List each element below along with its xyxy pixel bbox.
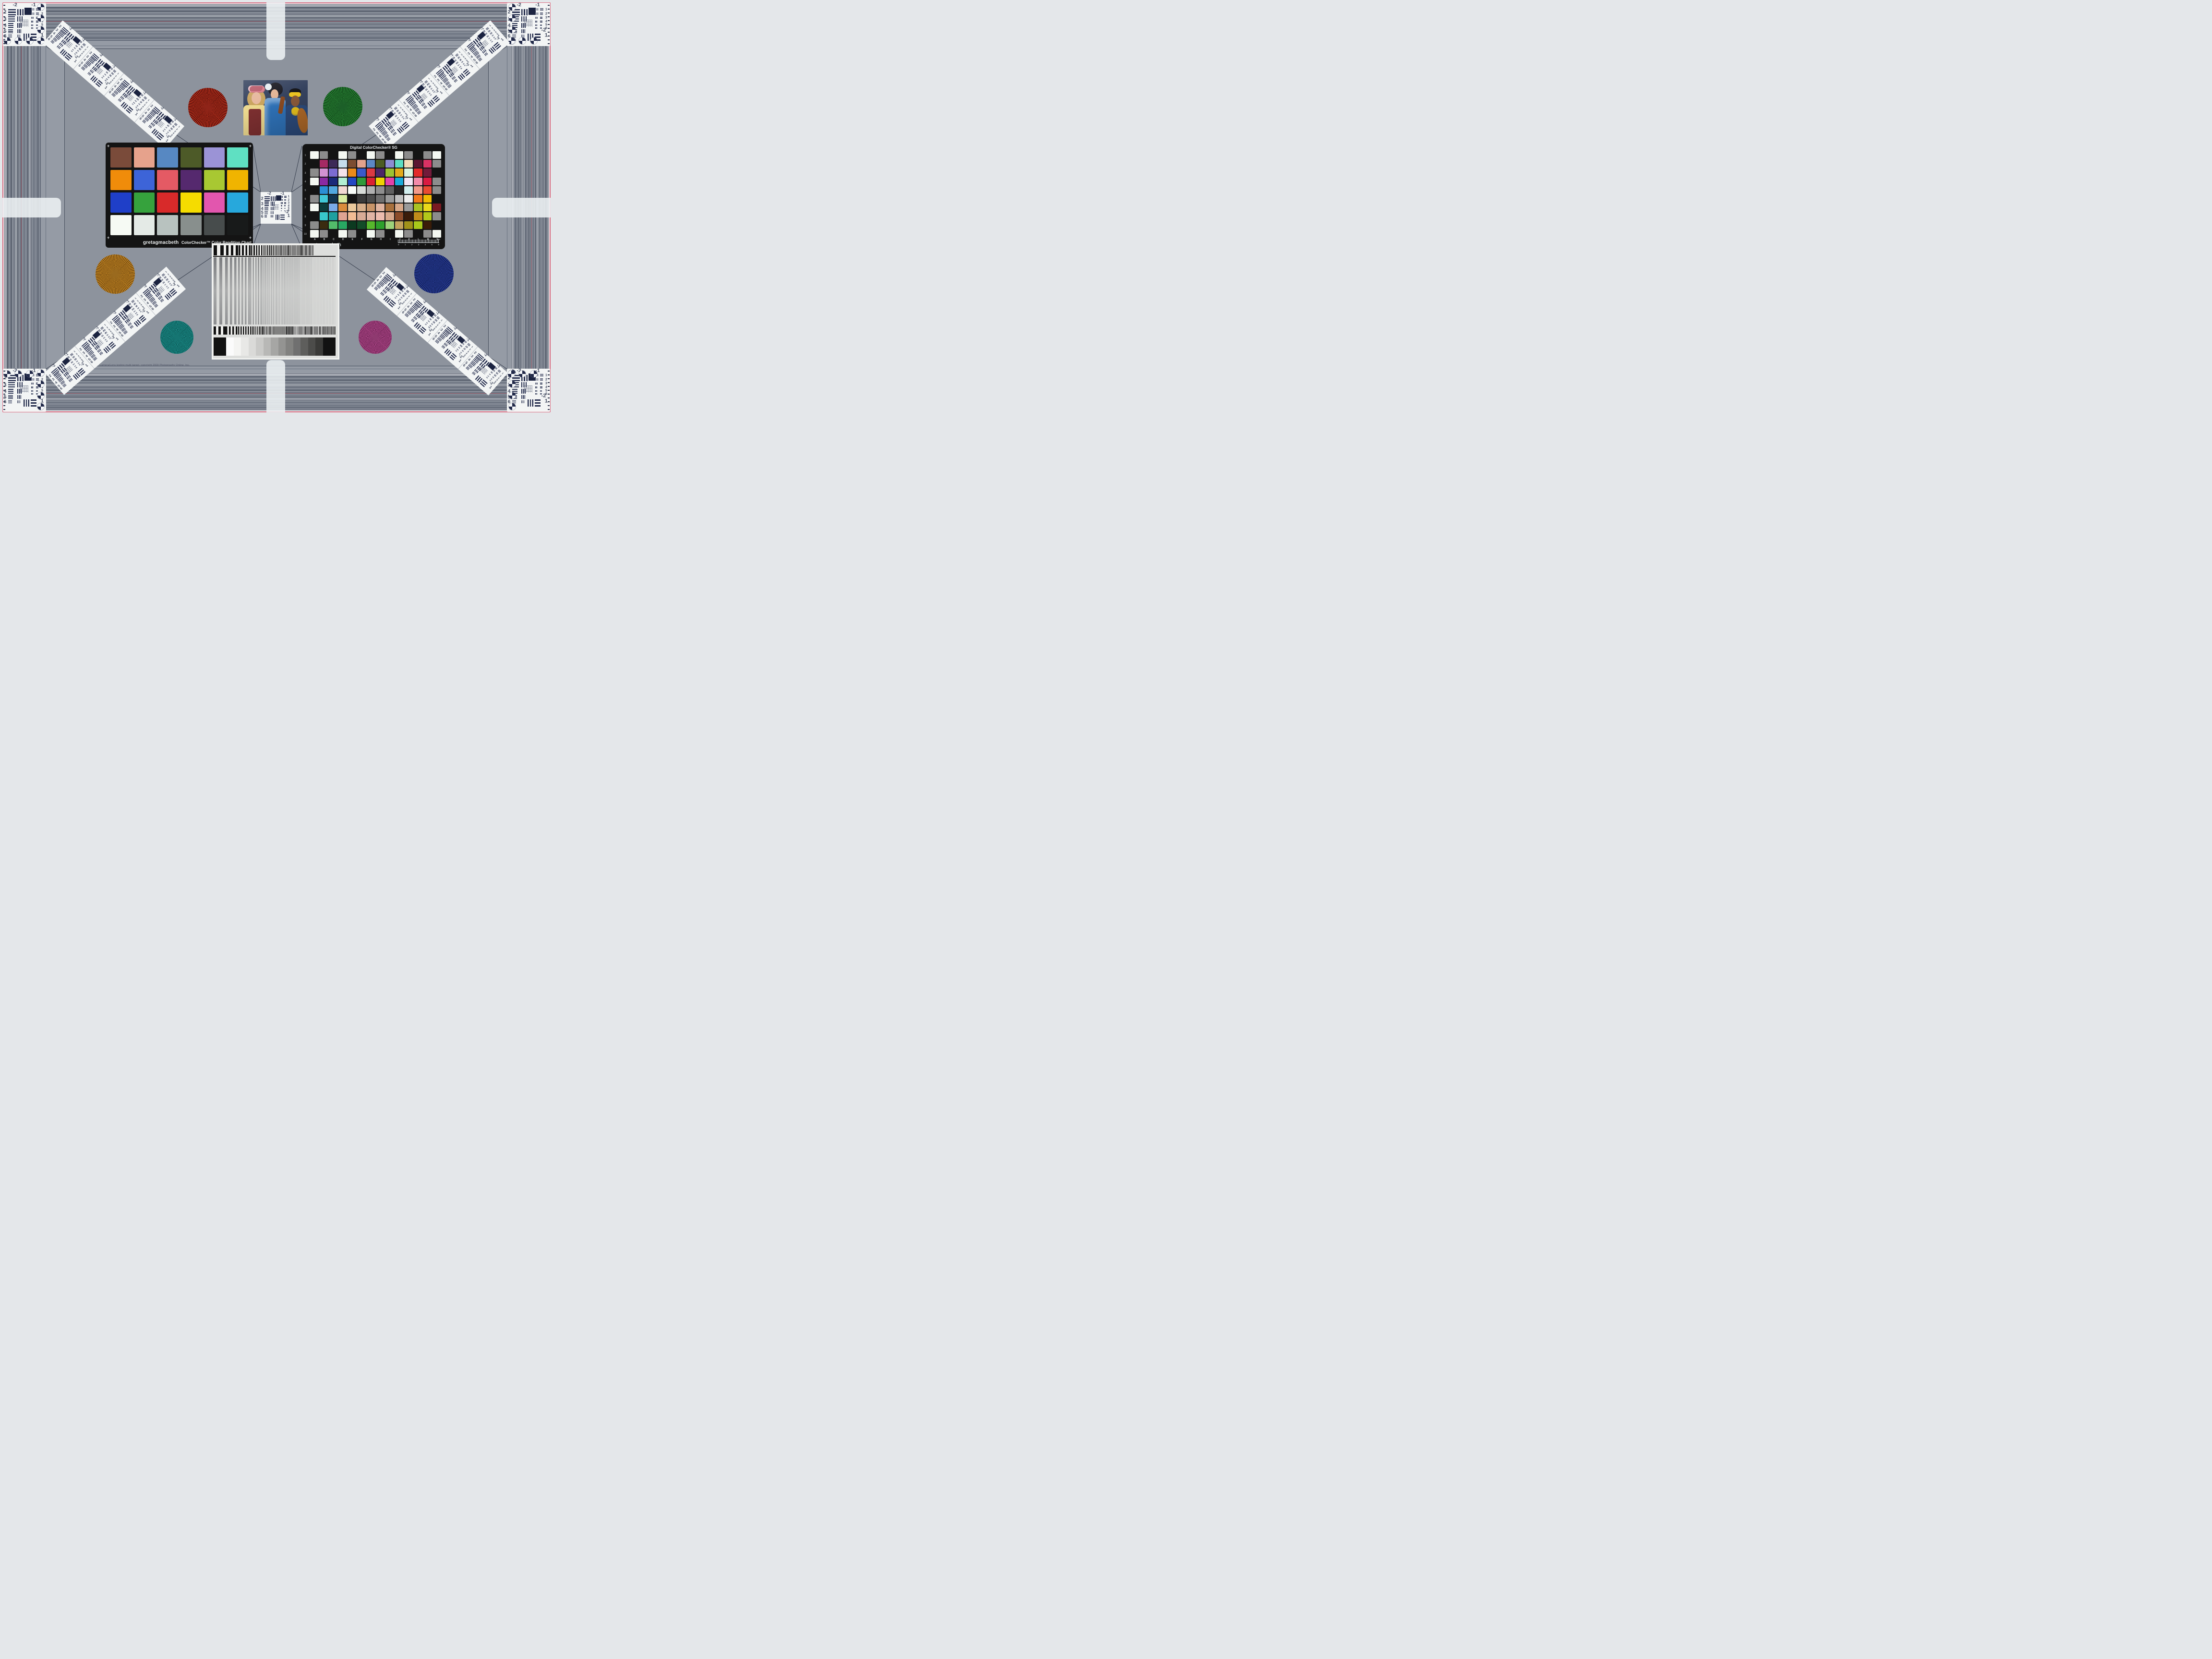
sg-grid	[310, 151, 441, 238]
usaf-bars	[99, 332, 102, 335]
usaf-bars	[79, 48, 81, 50]
usaf-number: 6	[59, 386, 63, 390]
usaf-bars	[521, 400, 525, 404]
color-patch	[395, 160, 404, 168]
usaf-bars	[135, 305, 138, 307]
color-patch	[320, 151, 328, 159]
usaf-number: 2	[443, 325, 446, 328]
registration-mark	[509, 403, 516, 410]
usaf-bars	[452, 57, 455, 60]
color-patch	[320, 186, 328, 194]
usaf-bars	[31, 17, 34, 19]
usaf-bars	[457, 56, 460, 59]
ramp-step	[234, 337, 241, 356]
registration-mark	[37, 15, 44, 22]
usaf-bars	[521, 9, 528, 16]
ramp-step	[256, 337, 264, 356]
usaf-number: 1	[288, 195, 289, 198]
registration-mark	[519, 37, 526, 44]
color-patch	[348, 195, 357, 203]
color-patch	[367, 178, 375, 185]
ramp-step	[264, 337, 271, 356]
color-patch	[367, 212, 375, 220]
usaf-number: 6	[139, 117, 143, 120]
usaf-bars	[399, 299, 401, 301]
color-patch	[134, 170, 155, 190]
usaf-bars	[271, 215, 273, 217]
color-patch	[329, 151, 337, 159]
usaf-bars	[449, 353, 457, 361]
usaf-bars	[17, 9, 24, 16]
usaf-bars	[489, 373, 491, 375]
usaf-bars	[132, 104, 133, 105]
mini-resolution-chart	[448, 339, 457, 348]
usaf-number: 1	[104, 85, 108, 90]
usaf-bars	[429, 85, 431, 88]
usaf-bars	[174, 123, 177, 126]
registration-mark	[509, 4, 516, 11]
usaf-bars	[17, 400, 21, 404]
bar-sweep-bottom	[214, 326, 336, 335]
usaf-bars	[284, 205, 286, 206]
usaf-bars	[395, 297, 396, 299]
black-square	[133, 89, 142, 97]
registration-mark	[509, 381, 516, 387]
usaf-bars	[138, 103, 141, 105]
usaf-number: 3	[545, 382, 547, 385]
usaf-bars	[142, 99, 144, 102]
color-patch	[338, 168, 347, 176]
siemens-star-blue	[414, 254, 454, 293]
usaf-bars	[264, 202, 269, 205]
usaf-bars	[484, 33, 487, 36]
color-patch	[376, 186, 385, 194]
usaf-number: 1	[500, 37, 505, 42]
usaf-bars	[167, 288, 168, 289]
usaf-number: 2	[508, 10, 511, 15]
star-center	[414, 254, 454, 293]
color-patch	[310, 212, 319, 220]
star-center	[359, 321, 392, 354]
usaf-bars	[459, 66, 461, 68]
usaf-number: -2	[267, 191, 271, 195]
star-center	[188, 88, 228, 127]
color-patch	[320, 212, 328, 220]
usaf-bars	[490, 39, 492, 41]
usaf-number: 4	[545, 386, 547, 389]
color-patch	[357, 204, 366, 211]
usaf-bars	[540, 17, 542, 19]
color-patch	[157, 147, 178, 168]
usaf-bars	[467, 343, 470, 347]
color-patch	[320, 160, 328, 168]
usaf-bars	[484, 52, 488, 56]
color-patch	[414, 168, 422, 176]
usaf-bars	[31, 24, 33, 26]
usaf-bars	[67, 356, 70, 359]
usaf-bars	[426, 322, 428, 324]
usaf-number: 1	[427, 332, 432, 337]
usaf-bars	[396, 296, 397, 298]
usaf-bars	[488, 37, 490, 39]
colorchecker-grid	[110, 147, 248, 235]
color-patch	[367, 168, 375, 176]
color-patch	[338, 160, 347, 168]
ruler-ticks	[3, 5, 5, 44]
usaf-bars	[494, 374, 496, 376]
ramp-step	[249, 337, 256, 356]
usaf-number: 2	[88, 51, 92, 55]
usaf-bars	[393, 132, 397, 136]
sweep-segment	[299, 326, 311, 335]
sg-column-label: H	[380, 238, 382, 241]
usaf-bars	[133, 302, 136, 305]
color-patch	[227, 192, 248, 213]
mini-resolution-chart	[94, 66, 103, 75]
usaf-bars	[8, 16, 15, 22]
black-square	[103, 62, 111, 71]
test-chart: -2-123456123456-21 -2-123456123456-21 -2…	[0, 0, 553, 415]
color-patch	[180, 170, 202, 190]
usaf-bars	[140, 101, 142, 103]
color-patch	[433, 204, 441, 211]
siemens-star-magenta	[359, 321, 392, 354]
ruler-ticks	[3, 371, 5, 410]
siemens-star-teal	[160, 321, 193, 354]
usaf-bars	[31, 27, 33, 29]
color-patch	[320, 230, 328, 238]
sweep-segment	[264, 245, 276, 255]
usaf-bars	[427, 83, 430, 86]
sg-column-label: F	[361, 238, 362, 241]
usaf-bars	[164, 128, 166, 130]
color-patch	[320, 204, 328, 211]
usaf-number: 1	[176, 284, 180, 288]
usaf-bars	[164, 284, 166, 286]
usaf-bars	[99, 352, 103, 356]
registration-mark	[37, 381, 44, 387]
sweep-segment	[226, 326, 238, 335]
usaf-bars	[454, 60, 457, 62]
sweep-panel	[212, 243, 339, 360]
sweep-segment	[289, 245, 301, 255]
siemens-star-red	[188, 88, 228, 127]
usaf-bars	[36, 378, 39, 381]
usaf-bars	[111, 72, 114, 75]
usaf-bars	[138, 96, 141, 98]
usaf-bars	[65, 53, 72, 61]
usaf-bars	[521, 395, 525, 399]
usaf-number: 6	[371, 284, 374, 288]
usaf-bars	[535, 24, 537, 26]
usaf-bars	[535, 17, 538, 19]
color-patch	[348, 160, 357, 168]
usaf-bars	[431, 323, 433, 325]
ruler-numbers: 0123456	[398, 243, 439, 246]
usaf-bars	[281, 196, 283, 198]
sg-title: Digital ColorChecker® SG	[302, 145, 445, 150]
color-patch	[357, 168, 366, 176]
usaf-number: 2	[119, 78, 123, 82]
sweep-segment	[214, 245, 226, 255]
color-patch	[357, 230, 366, 238]
usaf-bars	[535, 8, 538, 11]
color-patch	[134, 147, 155, 168]
color-patch	[433, 151, 441, 159]
resolution-target-bottom-left: -2-123456123456-21	[3, 369, 46, 412]
usaf-bars	[540, 386, 542, 388]
usaf-bars	[460, 351, 462, 353]
color-patch	[385, 230, 394, 238]
sg-row-label: 8	[305, 216, 306, 218]
usaf-bars	[388, 300, 396, 308]
usaf-bars	[482, 30, 486, 33]
usaf-bars	[425, 324, 426, 325]
usaf-bars	[136, 98, 139, 100]
color-patch	[227, 215, 248, 235]
usaf-number: 2	[473, 351, 477, 355]
ruler-ticks	[398, 240, 439, 243]
usaf-bars	[166, 286, 168, 288]
usaf-bars	[486, 377, 487, 378]
usaf-bars	[24, 399, 29, 407]
color-patch	[367, 204, 375, 211]
usaf-bars	[540, 8, 543, 11]
star-center	[160, 321, 193, 354]
siemens-star-orange	[96, 254, 135, 294]
registration-mark	[15, 37, 22, 44]
color-patch	[433, 186, 441, 194]
usaf-bars	[72, 363, 74, 365]
usaf-number: -2	[392, 273, 397, 278]
color-patch	[320, 168, 328, 176]
usaf-number: 2	[545, 378, 547, 381]
usaf-bars	[8, 23, 14, 28]
color-patch	[395, 178, 404, 185]
usaf-number: 2	[412, 298, 416, 301]
registration-mark	[37, 4, 44, 11]
black-square	[396, 283, 405, 291]
registration-mark	[509, 392, 516, 399]
color-patch	[357, 186, 366, 194]
sg-row-label: 2	[305, 163, 306, 166]
usaf-bars	[77, 50, 79, 52]
usaf-bars	[429, 318, 432, 321]
usaf-number: -2	[541, 27, 546, 33]
usaf-bars	[495, 372, 498, 375]
star-center	[323, 87, 362, 126]
usaf-bars	[31, 378, 34, 381]
usaf-bars	[540, 12, 543, 15]
siemens-star-green	[323, 87, 362, 126]
usaf-bars	[103, 75, 105, 77]
usaf-bars	[31, 12, 34, 15]
usaf-number: 1	[115, 337, 120, 341]
color-patch	[423, 186, 432, 194]
usaf-number: 1	[439, 91, 444, 95]
usaf-number: 2	[58, 24, 62, 28]
usaf-bars	[540, 21, 542, 23]
color-patch	[338, 195, 347, 203]
usaf-bars	[491, 41, 493, 43]
usaf-number: 1	[545, 8, 547, 11]
color-patch	[348, 230, 357, 238]
usaf-bars	[456, 350, 457, 352]
usaf-bars	[280, 215, 285, 220]
color-patch	[157, 192, 178, 213]
color-patch	[404, 230, 413, 238]
color-patch	[329, 221, 337, 229]
usaf-bars	[284, 199, 286, 201]
color-patch	[433, 195, 441, 203]
usaf-number: 6	[90, 360, 94, 364]
usaf-bars	[419, 326, 427, 334]
usaf-bars	[434, 319, 437, 322]
mini-resolution-chart	[20, 20, 28, 27]
usaf-bars	[271, 196, 276, 201]
color-patch	[338, 186, 347, 194]
color-patch	[110, 192, 132, 213]
color-patch	[404, 160, 413, 168]
usaf-number: 1	[134, 112, 139, 117]
color-patch	[423, 221, 432, 229]
resolution-target-top-left: -2-123456123456-21	[3, 3, 46, 46]
usaf-bars	[96, 80, 103, 87]
mini-resolution-chart	[273, 204, 279, 210]
color-patch	[367, 186, 375, 194]
ramp-step	[226, 337, 234, 356]
colorchecker-sg-chart: Digital ColorChecker® SG 12345678910 ABC…	[302, 144, 445, 249]
usaf-bars	[135, 312, 137, 314]
usaf-bars	[71, 50, 72, 52]
usaf-bars	[487, 375, 489, 377]
usaf-bars	[535, 378, 538, 381]
usaf-bars	[535, 399, 541, 407]
ruler-number: 3	[418, 243, 420, 246]
usaf-bars	[460, 345, 462, 347]
color-patch	[404, 186, 413, 194]
registration-mark	[37, 403, 44, 410]
usaf-bars	[133, 102, 135, 104]
color-patch	[395, 186, 404, 194]
usaf-number: 1	[397, 306, 401, 310]
usaf-bars	[72, 356, 75, 359]
usaf-bars	[264, 211, 268, 214]
resolution-target-top-right: -2-123456123456-21	[507, 3, 550, 46]
registration-mark	[530, 371, 537, 377]
color-patch	[357, 195, 366, 203]
color-patch	[310, 195, 319, 203]
registration-mark	[508, 371, 515, 377]
usaf-bars	[281, 202, 282, 204]
usaf-bars	[101, 77, 103, 78]
usaf-bars	[264, 196, 270, 201]
sweep-fade	[214, 257, 336, 325]
mini-resolution-chart	[387, 286, 397, 295]
usaf-bars	[486, 35, 489, 37]
usaf-bars	[128, 303, 131, 306]
usaf-bars	[160, 299, 164, 302]
usaf-number: -1	[31, 2, 36, 7]
usaf-bars	[540, 374, 543, 376]
sweep-segment	[324, 326, 336, 335]
usaf-bars	[17, 29, 21, 33]
usaf-bars	[69, 378, 72, 382]
usaf-number: 1	[85, 363, 89, 368]
usaf-bars	[535, 383, 538, 385]
usaf-bars	[457, 64, 459, 66]
usaf-bars	[397, 294, 399, 296]
color-patch	[329, 204, 337, 211]
usaf-bars	[69, 359, 72, 361]
color-patch	[385, 151, 394, 159]
usaf-bars	[103, 329, 106, 332]
star-center	[96, 254, 135, 294]
color-patch	[404, 168, 413, 176]
color-patch	[395, 230, 404, 238]
color-patch	[357, 160, 366, 168]
registration-mark	[15, 371, 22, 377]
ruler-number: 6	[438, 243, 439, 246]
usaf-bars	[170, 127, 173, 130]
mini-resolution-chart	[479, 366, 488, 374]
usaf-number: -2	[13, 2, 17, 7]
usaf-bars	[31, 21, 33, 23]
usaf-bars	[168, 130, 171, 132]
usaf-bars	[130, 325, 133, 329]
color-patch	[433, 168, 441, 176]
black-square	[426, 309, 435, 317]
color-patch	[357, 212, 366, 220]
color-patch	[433, 212, 441, 220]
usaf-bars	[108, 76, 110, 79]
usaf-bars	[36, 21, 38, 23]
usaf-number: 4	[545, 20, 547, 24]
sweep-segment	[250, 326, 262, 335]
usaf-number: -2	[541, 393, 546, 398]
color-patch	[329, 186, 337, 194]
color-patch	[423, 195, 432, 203]
usaf-number: -1	[280, 191, 284, 195]
usaf-bars	[36, 12, 39, 15]
sg-column-label: E	[352, 238, 353, 241]
registration-mark	[509, 26, 516, 33]
usaf-bars	[137, 314, 138, 315]
usaf-number: 6	[383, 140, 387, 144]
usaf-bars	[391, 110, 394, 113]
color-patch	[227, 147, 248, 168]
usaf-bars	[97, 330, 101, 333]
color-patch	[395, 195, 404, 203]
mini-resolution-chart	[156, 119, 165, 128]
color-patch	[204, 147, 225, 168]
usaf-bars	[160, 279, 163, 282]
usaf-bars	[492, 369, 495, 372]
usaf-bars	[540, 378, 543, 381]
color-patch	[385, 178, 394, 185]
usaf-bars	[457, 349, 459, 350]
color-patch	[414, 195, 422, 203]
usaf-bars	[8, 389, 14, 394]
usaf-number: -2	[68, 26, 73, 31]
usaf-bars	[106, 340, 108, 342]
color-patch	[310, 168, 319, 176]
color-patch	[310, 221, 319, 229]
usaf-bars	[497, 370, 501, 373]
color-patch	[423, 160, 432, 168]
sweep-segment	[238, 326, 250, 335]
usaf-number: 6	[108, 90, 112, 94]
